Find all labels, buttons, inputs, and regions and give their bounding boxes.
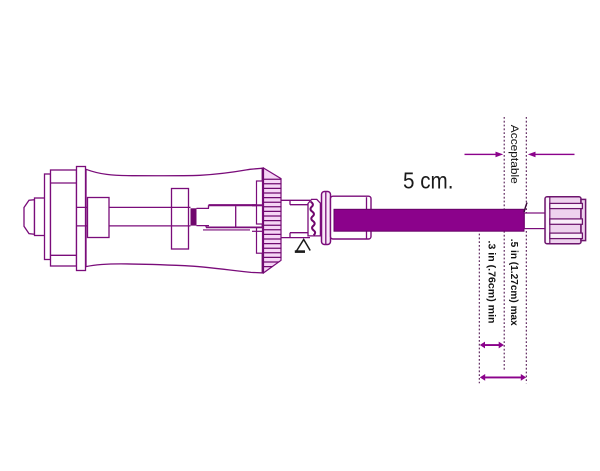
svg-text:5 cm.: 5 cm.: [403, 168, 454, 194]
svg-text:.3 in (.76cm) min: .3 in (.76cm) min: [485, 241, 496, 324]
svg-text:Acceptable: Acceptable: [508, 125, 520, 184]
svg-text:.5 in (1.27cm) max: .5 in (1.27cm) max: [508, 239, 519, 326]
